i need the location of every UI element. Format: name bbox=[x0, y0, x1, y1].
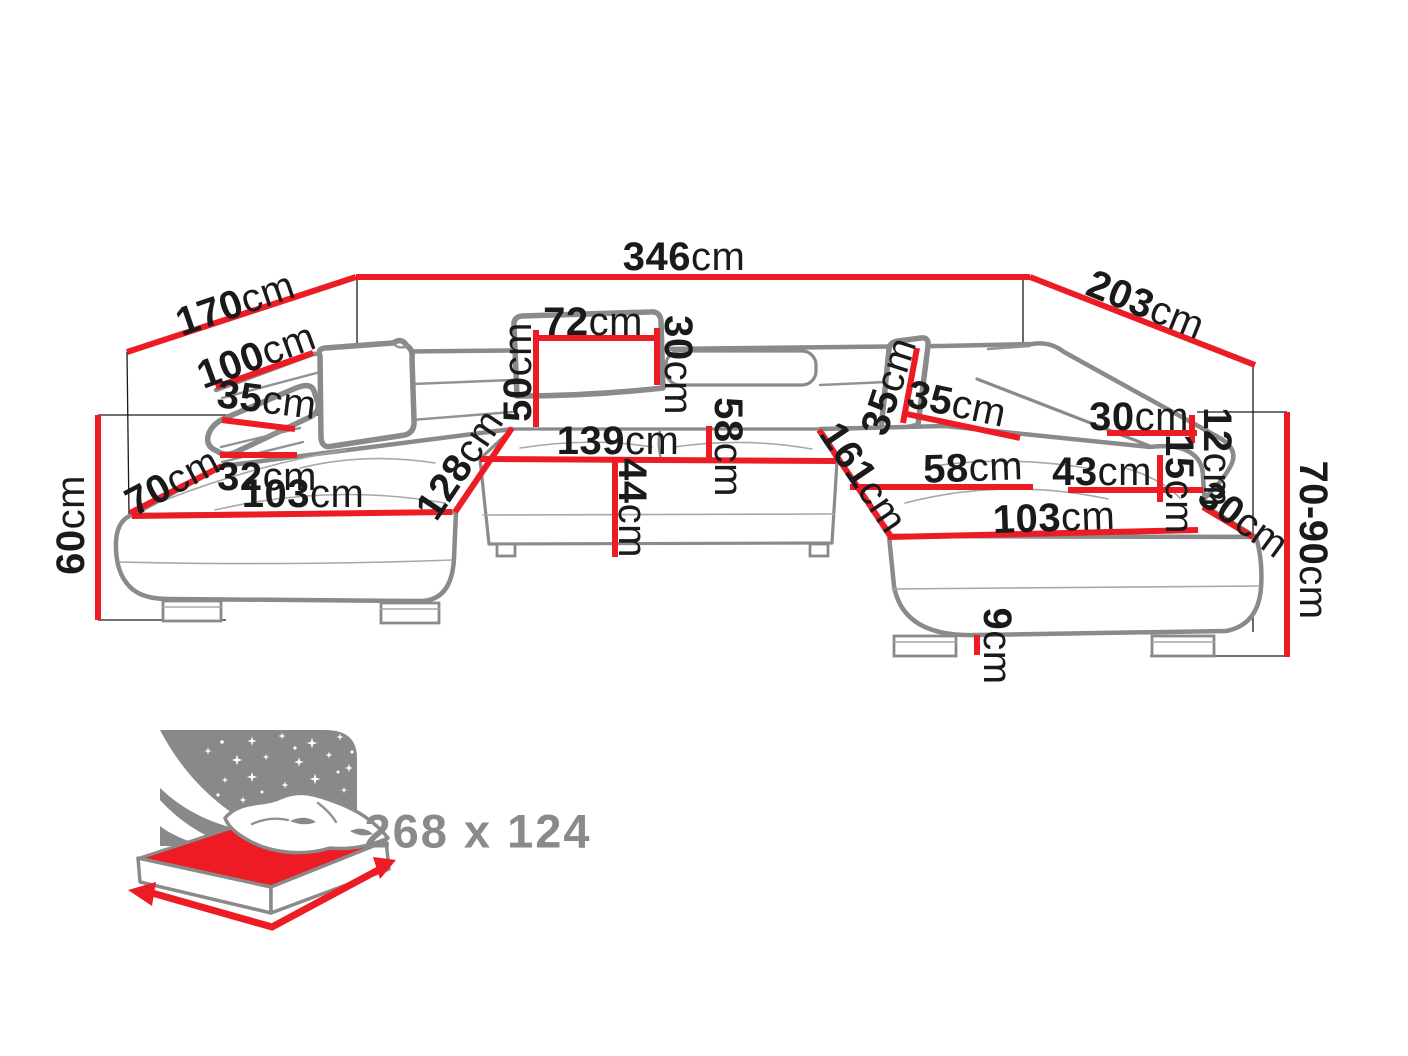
dim-label-right-seat-depth: 58cm bbox=[922, 444, 1023, 491]
dim-label-backrest-height: 50cm bbox=[496, 322, 540, 422]
dim-label-right-armrest-depth: 43cm bbox=[1052, 450, 1152, 494]
sofa-dimension-diagram: 346cm 170cm 203cm 100cm 35cm 70cm 32cm 6… bbox=[0, 0, 1408, 1056]
dim-label-headrest-width: 72cm bbox=[543, 300, 643, 344]
dim-label-seat-height: 60cm bbox=[49, 475, 93, 575]
dim-label-leg-height: 9cm bbox=[975, 607, 1019, 684]
dim-label-middle-seat-width: 139cm bbox=[557, 419, 680, 463]
dim-label-left-seat-length: 103cm bbox=[242, 472, 365, 516]
sleeping-area-label: 268 x 124 bbox=[364, 804, 591, 857]
diagram-svg: 346cm 170cm 203cm 100cm 35cm 70cm 32cm 6… bbox=[0, 0, 1408, 1056]
dim-label-headrest-height: 30cm bbox=[656, 315, 700, 415]
dim-label-right-seat-length: 103cm bbox=[992, 494, 1116, 542]
dim-label-adjustable-height: 70-90cm bbox=[1291, 460, 1335, 619]
dim-label-seat-front-height: 44cm bbox=[610, 458, 654, 558]
right-front-face bbox=[889, 536, 1261, 635]
dim-label-corner-15: 15cm bbox=[1157, 434, 1201, 534]
pillow bbox=[319, 341, 414, 447]
left-front-face bbox=[116, 512, 456, 601]
bed-arrow-head-left bbox=[128, 882, 156, 906]
dim-label-middle-seat-depth: 58cm bbox=[706, 397, 750, 497]
sleeper-bed-icon: 268 x 124 bbox=[128, 730, 592, 927]
dim-label-total-width: 346cm bbox=[623, 235, 746, 279]
center-front-seam bbox=[483, 514, 834, 515]
dim-label-right-armrest-top: 30cm bbox=[1089, 395, 1189, 439]
dim-label-right-side-depth: 203cm bbox=[1081, 262, 1211, 349]
center-front-face bbox=[480, 459, 837, 544]
